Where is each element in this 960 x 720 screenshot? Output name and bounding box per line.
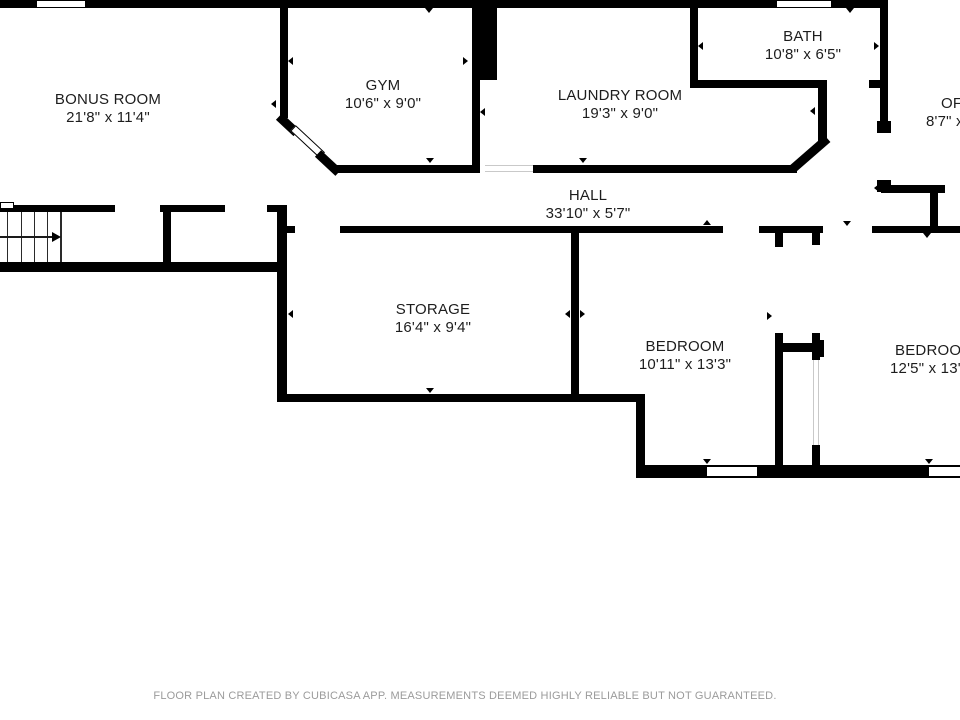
room-label-office: OFFICE 8'7" x bbox=[941, 95, 960, 131]
window-bath bbox=[776, 0, 832, 8]
wall-laundry-right bbox=[818, 88, 827, 143]
room-label-gym: GYM 10'6" x 9'0" bbox=[345, 77, 421, 113]
opening-line bbox=[818, 360, 819, 445]
room-label-bedroom-1: BEDROOM 10'11" x 13'3" bbox=[639, 338, 731, 374]
door-marker-icon bbox=[426, 158, 434, 163]
footer-disclaimer: FLOOR PLAN CREATED BY CUBICASA APP. MEAS… bbox=[0, 690, 930, 702]
room-label-storage: STORAGE 16'4" x 9'4" bbox=[395, 301, 471, 337]
wall-hall-bottom bbox=[340, 226, 723, 233]
wall-bonus-bottom bbox=[160, 205, 225, 212]
wall-bonus-gym bbox=[280, 8, 288, 118]
door-marker-icon bbox=[580, 310, 585, 318]
door-marker-icon bbox=[846, 8, 854, 13]
door-marker-icon bbox=[703, 220, 711, 225]
wall-bedroom-divider-b bbox=[812, 445, 820, 470]
wall-door-jamb bbox=[877, 121, 891, 133]
wall-bath-bottom bbox=[690, 80, 827, 88]
window-bonus-room bbox=[36, 0, 86, 8]
wall-storage-left bbox=[277, 205, 287, 402]
wall-closet-stub bbox=[783, 343, 818, 352]
door-marker-icon bbox=[874, 184, 879, 192]
door-marker-icon bbox=[703, 459, 711, 464]
wall-bedroom-divider-b bbox=[812, 226, 820, 245]
window-bedroom-1 bbox=[706, 466, 758, 477]
door-marker-icon bbox=[288, 310, 293, 318]
wall-laundry-bottom bbox=[533, 165, 797, 173]
door-marker-icon bbox=[925, 459, 933, 464]
room-label-laundry-room: LAUNDRY ROOM 19'3" x 9'0" bbox=[558, 87, 682, 123]
room-label-bedroom-2: BEDROOM 12'5" x 13'3" bbox=[895, 342, 960, 378]
room-label-bonus-room: BONUS ROOM 21'8" x 11'4" bbox=[55, 91, 161, 127]
wall-storage-right bbox=[571, 233, 579, 402]
wall-bonus-bottom bbox=[0, 205, 115, 212]
stairs-arrow-icon bbox=[52, 232, 61, 242]
door-marker-icon bbox=[480, 108, 485, 116]
wall-closet-jamb bbox=[816, 340, 824, 357]
wall-lower-left bbox=[0, 262, 287, 272]
wall-top bbox=[0, 0, 888, 8]
wall-bedroom-divider-a bbox=[775, 333, 783, 465]
wall-bedroom-bottom bbox=[636, 465, 960, 478]
wall-chimney-block bbox=[477, 0, 497, 80]
door-marker-icon bbox=[579, 158, 587, 163]
door-marker-icon bbox=[843, 221, 851, 226]
wall-hall-bottom bbox=[872, 226, 960, 233]
door-marker-icon bbox=[565, 310, 570, 318]
room-label-bath: BATH 10'8" x 6'5" bbox=[765, 28, 841, 64]
wall-step bbox=[636, 402, 645, 472]
floor-plan: BONUS ROOM 21'8" x 11'4" GYM 10'6" x 9'0… bbox=[0, 0, 960, 720]
door-marker-icon bbox=[426, 388, 434, 393]
door-marker-icon bbox=[874, 42, 879, 50]
wall-hall-bottom bbox=[287, 226, 295, 233]
wall-nook bbox=[930, 190, 938, 230]
door-marker-icon bbox=[271, 100, 276, 108]
door-marker-icon bbox=[767, 312, 772, 320]
door-marker-icon bbox=[698, 42, 703, 50]
window-stair-landing bbox=[0, 202, 14, 209]
opening-line bbox=[485, 165, 533, 166]
door-marker-icon bbox=[923, 233, 931, 238]
opening-line bbox=[813, 360, 814, 445]
window-bedroom-2 bbox=[928, 466, 960, 477]
wall-bath-left bbox=[690, 8, 698, 88]
wall-landing-divider bbox=[163, 212, 171, 262]
stairs-direction-line bbox=[0, 236, 52, 238]
wall-office-left-upper bbox=[880, 0, 888, 132]
door-marker-icon bbox=[810, 107, 815, 115]
wall-bedroom-divider-a bbox=[775, 233, 783, 247]
door-marker-icon bbox=[463, 57, 468, 65]
room-label-hall: HALL 33'10" x 5'7" bbox=[546, 187, 631, 223]
wall-storage-bottom bbox=[277, 394, 645, 402]
door-marker-icon bbox=[425, 8, 433, 13]
opening-line bbox=[485, 171, 533, 172]
wall-gym-bottom bbox=[334, 165, 480, 173]
door-marker-icon bbox=[288, 57, 293, 65]
